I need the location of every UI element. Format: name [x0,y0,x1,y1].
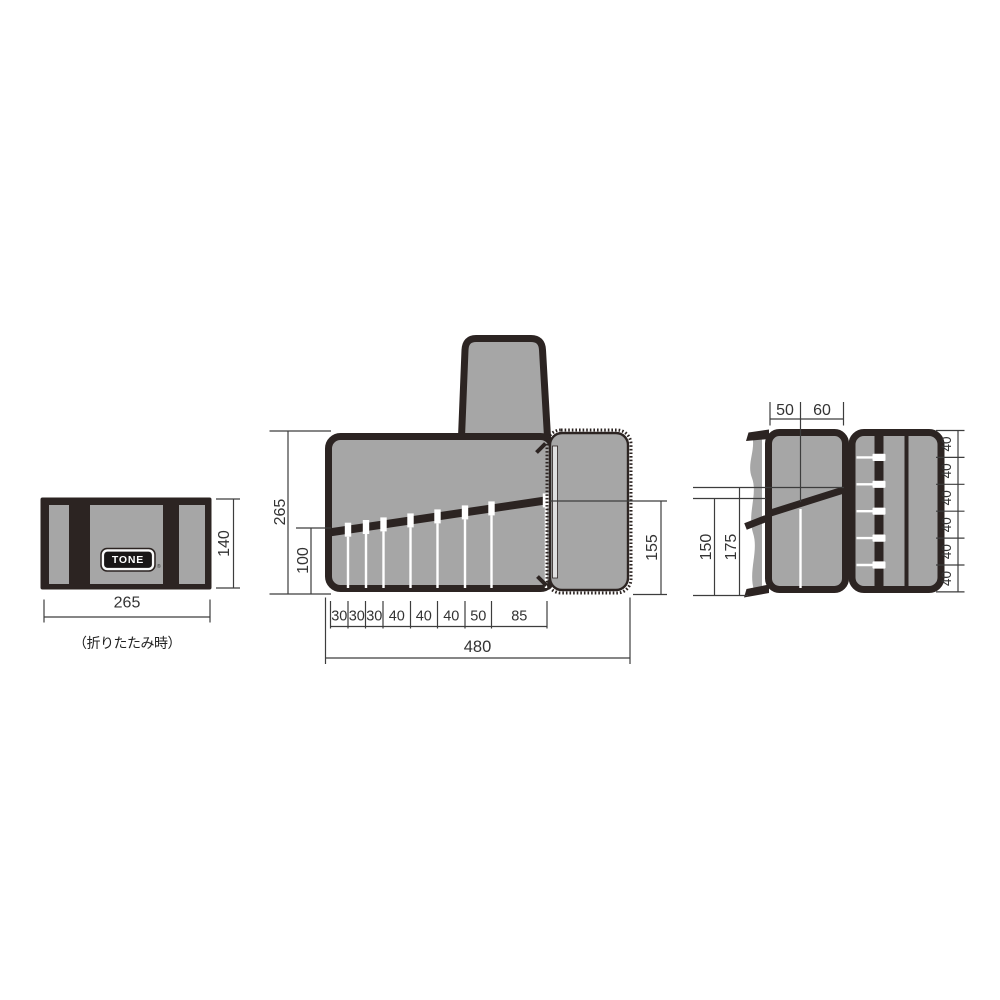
pocket-width-label: 30 [366,609,382,625]
folded-width-label: 265 [114,595,141,612]
open-width-label: 480 [464,638,492,656]
side-height-label: 150 [698,534,715,561]
pocket-width-label: 50 [470,609,486,625]
open-view: 265 100 155 30 30 30 40 40 40 50 85 [270,339,668,665]
drawing-canvas: TONE ® 140 265 （折りたたみ時） [0,0,1000,1000]
loop-panel-seam [905,432,909,590]
pocket-width-label: 30 [331,609,347,625]
side-height-label: 175 [723,534,740,561]
side-view: 50 60 150 175 40 40 40 40 40 40 [693,402,965,598]
flap-pocket-height-label: 155 [644,534,661,561]
loop-spacing-label: 40 [939,463,954,478]
side-top-width-label: 60 [813,402,831,419]
folded-center-panel [90,505,163,584]
side-top-width-label: 50 [776,402,794,419]
loop-spacing-label: 40 [939,436,954,451]
pocket-width-labels: 30 30 30 40 40 40 50 85 [331,609,527,625]
pocket-width-label: 40 [443,609,459,625]
folded-caption: （折りたたみ時） [73,635,181,651]
folded-height-label: 140 [216,530,233,557]
folded-view: TONE ® 140 265 （折りたたみ時） [41,498,241,652]
open-height-label: 265 [272,499,289,526]
loop-spacing-label: 40 [939,544,954,559]
pocket-width-label: 30 [349,609,365,625]
folded-left-panel [49,505,69,584]
flap [462,339,548,438]
loop-spacing-label: 40 [939,490,954,505]
logo-text: TONE [112,554,144,566]
loop-spacing-label: 40 [939,571,954,586]
break-strip [750,434,762,591]
folded-right-panel [179,505,205,584]
pocket-depth-label: 100 [295,547,312,574]
pocket-width-label: 40 [416,609,432,625]
pocket-width-label: 40 [389,609,405,625]
loop-spacing-label: 40 [939,517,954,532]
pocket-width-label: 85 [511,609,527,625]
tool-roll-dimension-diagram: TONE ® 140 265 （折りたたみ時） [0,0,1000,1000]
zipper-track [553,446,558,578]
break-strip-top-edge [746,430,769,442]
registered-mark: ® [157,563,161,570]
flap-pocket [550,433,628,590]
band-fragment [746,519,767,527]
